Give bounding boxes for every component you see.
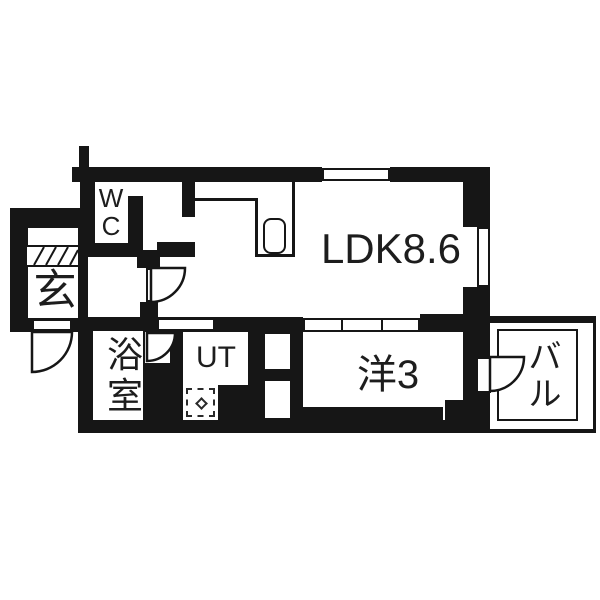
door-or-window-opening: [303, 318, 420, 332]
wall-segment: [445, 400, 463, 420]
wall-segment: [157, 242, 195, 257]
door-or-window-opening: [32, 319, 72, 331]
washing-machine-icon: [195, 397, 208, 410]
room-label-balcony: バル: [527, 338, 563, 412]
wall-segment: [182, 180, 195, 217]
door-or-window-opening: [263, 379, 292, 420]
entrance-door-arc: [32, 332, 72, 372]
room-label-bath: 浴室: [106, 334, 144, 416]
door-or-window-opening: [477, 227, 490, 287]
wall-segment: [10, 208, 28, 332]
room-label-utility: UT: [193, 342, 239, 374]
thin-line: [341, 318, 343, 332]
door-or-window-opening: [322, 168, 390, 181]
wall-segment: [420, 314, 463, 332]
shoe-cabinet: [25, 245, 80, 267]
door-or-window-opening: [143, 332, 170, 363]
wall-segment: [72, 167, 322, 182]
door-or-window-opening: [146, 268, 157, 302]
door-or-window-opening: [476, 357, 491, 393]
floor-plan: WC 玄 浴室 UT LDK8.6 洋3 バル: [0, 0, 600, 600]
door-or-window-opening: [263, 332, 292, 371]
thin-line: [292, 178, 295, 257]
wall-segment: [137, 250, 160, 268]
wall-segment: [80, 420, 463, 433]
thin-line: [381, 318, 383, 332]
wall-segment: [78, 317, 93, 433]
thin-line: [255, 254, 295, 257]
wall-segment: [79, 146, 89, 168]
room-label-wc: WC: [97, 184, 125, 240]
washing-machine-space: [186, 388, 215, 417]
room-label-genkan: 玄: [33, 268, 77, 314]
kitchen-sink: [263, 218, 286, 254]
door-arc-layer: [0, 0, 600, 600]
room-label-ldk: LDK8.6: [316, 226, 466, 272]
wall-segment: [463, 167, 490, 227]
wall-segment: [303, 407, 443, 420]
door-or-window-opening: [157, 318, 215, 331]
wall-segment: [128, 196, 143, 257]
thin-line: [255, 198, 258, 257]
thin-line: [195, 198, 257, 201]
wall-segment: [140, 302, 158, 317]
room-label-western: 洋3: [350, 352, 426, 398]
